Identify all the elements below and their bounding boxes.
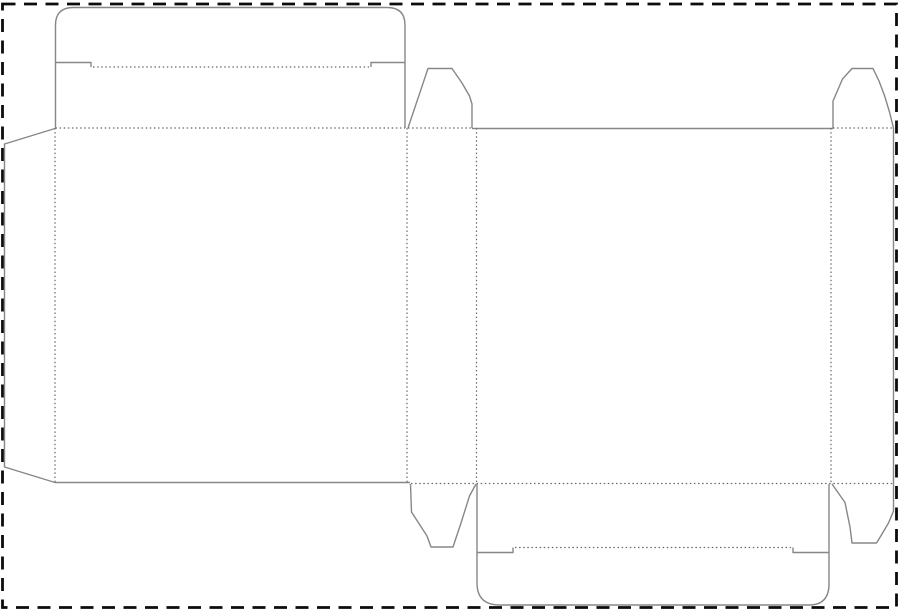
bottom-tuck-flap-slit-left [477,548,513,553]
top-dust-flap-left-outline [408,69,472,129]
top-dust-flap-right-outline [833,69,894,129]
top-tuck-flap-slit-right [371,63,405,68]
glue-flap-outline [5,129,56,483]
right-side-and-bottom-dust-flap-right-cut [832,128,894,543]
bottom-tuck-flap-outline [477,484,829,605]
box-dieline-drawing [0,0,900,614]
top-tuck-flap-slit-left [56,63,92,68]
dieline-page [0,0,900,614]
artboard-dashed-cut-border [3,4,897,608]
bottom-dust-flap-left-outline [411,484,477,547]
bottom-tuck-flap-slit-right [793,548,829,553]
top-tuck-flap-outline [56,8,406,129]
